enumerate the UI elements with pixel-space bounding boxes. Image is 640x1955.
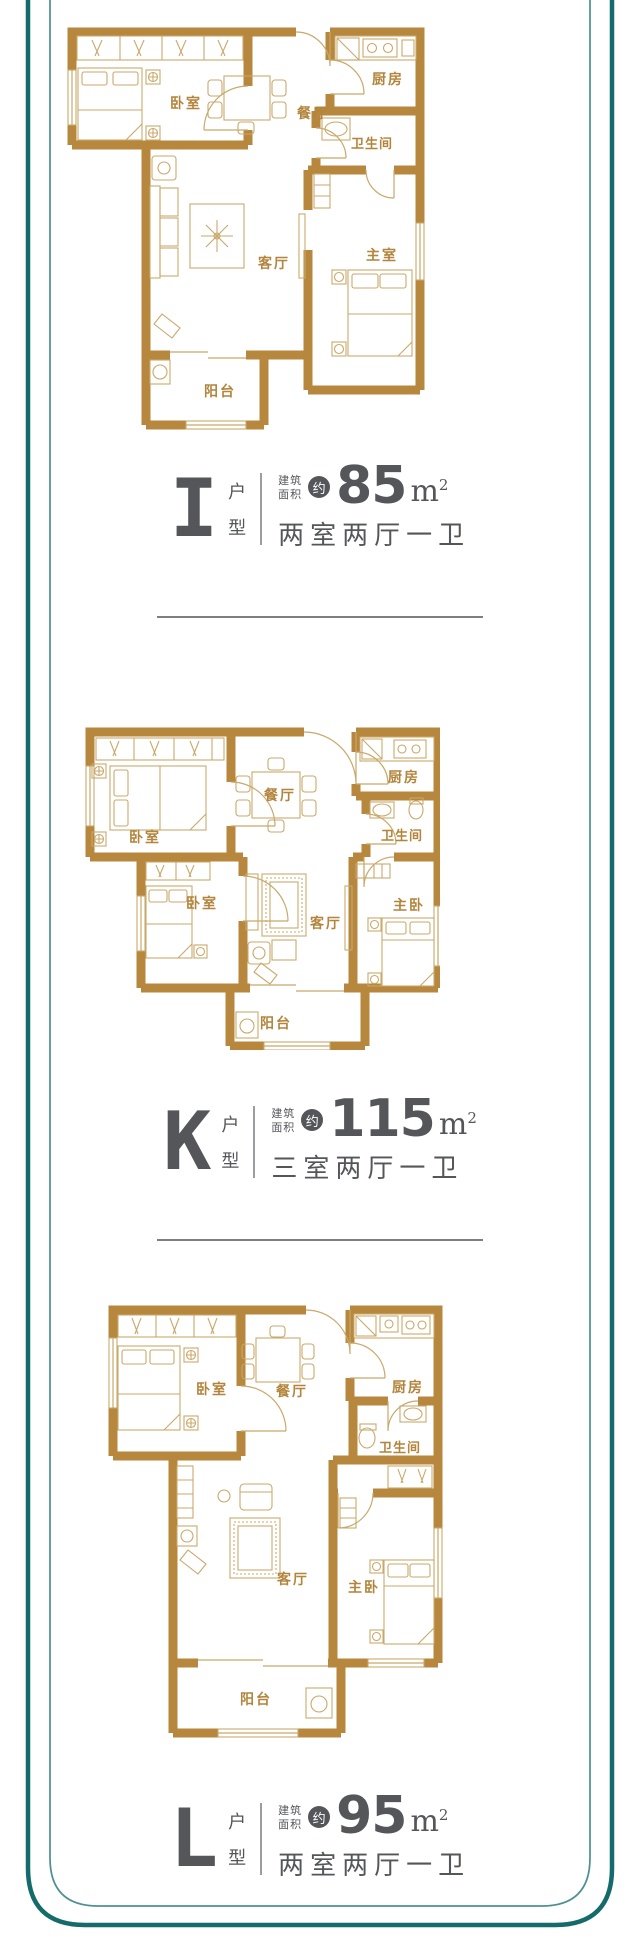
room-label: 餐厅 bbox=[275, 1383, 308, 1399]
area-unit: m2 bbox=[410, 1800, 448, 1837]
label-vertical-divider bbox=[260, 1803, 262, 1875]
floor-plan-l: 卧室 餐厅 厨房 卫生间 客厅 主卧 阳台 bbox=[88, 1298, 448, 1740]
type-suffix: 户 型 bbox=[221, 1111, 239, 1173]
approx-badge: 约 bbox=[308, 1806, 330, 1828]
area-unit: m2 bbox=[439, 1103, 477, 1140]
room-label: 卧室 bbox=[129, 829, 161, 845]
room-label: 厨房 bbox=[392, 1379, 424, 1395]
flyer-canvas: 卧室 餐厅 厨房 卫生间 客厅 主室 阳台 I 户 型 建筑 面积 约 85 m… bbox=[0, 0, 640, 1955]
room-label: 卫生间 bbox=[351, 136, 393, 151]
area-prefix: 建筑 面积 bbox=[278, 474, 302, 502]
suffix-bottom: 型 bbox=[228, 514, 246, 540]
room-label: 卧室 bbox=[170, 95, 202, 111]
unit-k-letter: K bbox=[163, 1104, 211, 1180]
area-value: 95 bbox=[336, 1795, 406, 1837]
layout-text: 三室两厅一卫 bbox=[271, 1148, 477, 1185]
room-label: 主室 bbox=[366, 247, 398, 263]
layout-text: 两室两厅一卫 bbox=[278, 1845, 470, 1882]
unit-i-label: I 户 型 建筑 面积 约 85 m2 两室两厅一卫 bbox=[0, 465, 640, 552]
room-label: 卧室 bbox=[186, 895, 218, 911]
unit-l-label: L 户 型 建筑 面积 约 95 m2 两室两厅一卫 bbox=[0, 1795, 640, 1882]
area-prefix: 建筑 面积 bbox=[271, 1107, 295, 1135]
label-vertical-divider bbox=[253, 1106, 255, 1178]
sliding-door bbox=[250, 985, 344, 991]
room-label: 厨房 bbox=[388, 769, 420, 785]
label-vertical-divider bbox=[260, 473, 262, 545]
type-suffix: 户 型 bbox=[228, 478, 246, 540]
suffix-top: 户 bbox=[228, 478, 246, 504]
section-divider bbox=[157, 616, 483, 618]
floor-plan-k: 卧室 餐厅 厨房 卫生间 卧室 客厅 主卧 阳台 bbox=[64, 726, 440, 1050]
approx-badge: 约 bbox=[301, 1109, 323, 1131]
room-label: 卫生间 bbox=[381, 828, 423, 843]
unit-i-letter: I bbox=[170, 471, 218, 547]
door-arcs bbox=[231, 732, 396, 991]
layout-text: 两室两厅一卫 bbox=[278, 515, 470, 552]
room-label: 客厅 bbox=[257, 255, 290, 271]
furniture bbox=[77, 36, 416, 384]
room-label: 客厅 bbox=[309, 915, 342, 931]
room-label: 主卧 bbox=[393, 897, 425, 913]
room-label: 阳台 bbox=[260, 1015, 292, 1031]
room-label: 卫生间 bbox=[379, 1440, 421, 1455]
sliding-door bbox=[198, 1660, 328, 1666]
area-unit: m2 bbox=[410, 470, 448, 507]
sliding-door bbox=[170, 352, 246, 358]
room-label: 客厅 bbox=[276, 1571, 309, 1587]
area-value: 115 bbox=[329, 1098, 435, 1140]
area-prefix: 建筑 面积 bbox=[278, 1804, 302, 1832]
unit-l-letter: L bbox=[170, 1801, 218, 1877]
room-label: 阳台 bbox=[240, 1691, 272, 1707]
room-label: 餐厅 bbox=[263, 787, 296, 803]
area-value: 85 bbox=[336, 465, 406, 507]
room-label: 餐厅 bbox=[296, 105, 329, 121]
section-divider bbox=[157, 1239, 483, 1241]
room-label: 主卧 bbox=[348, 1579, 380, 1595]
floor-plan-i: 卧室 餐厅 厨房 卫生间 客厅 主室 阳台 bbox=[58, 18, 433, 430]
unit-k-label: K 户 型 建筑 面积 约 115 m2 三室两厅一卫 bbox=[0, 1098, 640, 1185]
room-label: 卧室 bbox=[196, 1381, 228, 1397]
furniture bbox=[118, 1314, 434, 1718]
type-suffix: 户 型 bbox=[228, 1808, 246, 1870]
approx-badge: 约 bbox=[308, 476, 330, 498]
room-label: 阳台 bbox=[204, 383, 236, 399]
room-label: 厨房 bbox=[372, 71, 404, 87]
